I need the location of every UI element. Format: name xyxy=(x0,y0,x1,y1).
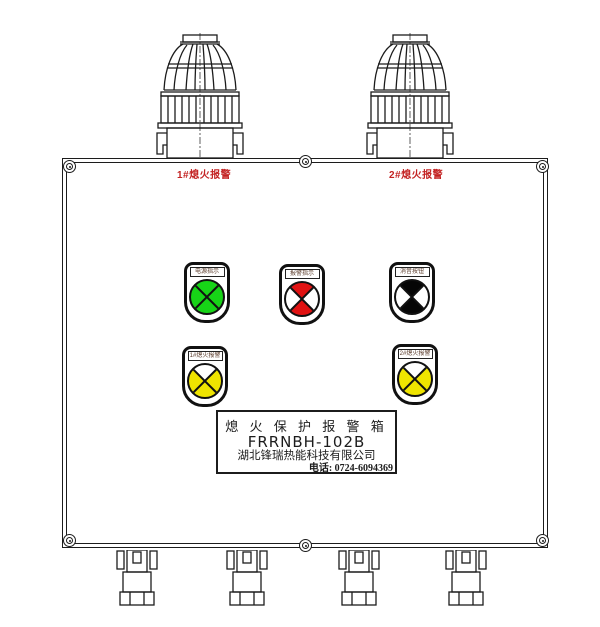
red-lamp-icon xyxy=(284,281,320,317)
nameplate-model: FRRNBH-102B xyxy=(218,435,395,450)
cable-gland-3 xyxy=(338,550,380,612)
indicator-power-green: 电源指示 xyxy=(184,262,230,323)
screw-top-middle xyxy=(299,155,312,168)
black-button-icon xyxy=(394,279,430,315)
green-lamp-icon xyxy=(189,279,225,315)
screw-bottom-middle xyxy=(299,539,312,552)
indicator-alarm-red: 报警指示 xyxy=(279,264,325,325)
indicator-flameout-1-tag: 1#熄火报警 xyxy=(188,351,223,361)
indicator-flameout-1-yellow: 1#熄火报警 xyxy=(182,346,228,407)
indicator-power-tag: 电源指示 xyxy=(190,267,225,277)
screw-top-right xyxy=(536,160,549,173)
beacon-2-label: 2#熄火报警 xyxy=(389,166,443,181)
screw-top-left xyxy=(63,160,76,173)
yellow-lamp-icon xyxy=(397,361,433,397)
nameplate: 熄 火 保 护 报 警 箱 FRRNBH-102B 湖北锋瑞热能科技有限公司 电… xyxy=(216,410,397,474)
indicator-mute-black: 消音按钮 xyxy=(389,262,435,323)
beacon-1-label: 1#熄火报警 xyxy=(177,166,231,181)
indicator-flameout-2-yellow: 2#熄火报警 xyxy=(392,344,438,405)
cable-gland-2 xyxy=(226,550,268,612)
indicator-alarm-tag: 报警指示 xyxy=(285,269,320,279)
enclosure-door-seam xyxy=(66,162,544,544)
alarm-beacon-2-drawing xyxy=(354,33,466,160)
yellow-lamp-icon xyxy=(187,363,223,399)
alarm-box-drawing: 1#熄火报警 2#熄火报警 电源指示 报警指示 消音按钮 1#熄火报警 2#熄火… xyxy=(0,0,600,627)
nameplate-company: 湖北锋瑞热能科技有限公司 xyxy=(218,450,395,463)
cable-gland-1 xyxy=(116,550,158,612)
cable-gland-4 xyxy=(445,550,487,612)
nameplate-phone: 电话: 0724-6094369 xyxy=(218,463,395,475)
screw-bottom-right xyxy=(536,534,549,547)
indicator-mute-tag: 消音按钮 xyxy=(395,267,430,277)
indicator-flameout-2-tag: 2#熄火报警 xyxy=(398,349,433,359)
screw-bottom-left xyxy=(63,534,76,547)
alarm-beacon-1-drawing xyxy=(144,33,256,160)
enclosure-body xyxy=(62,158,548,548)
